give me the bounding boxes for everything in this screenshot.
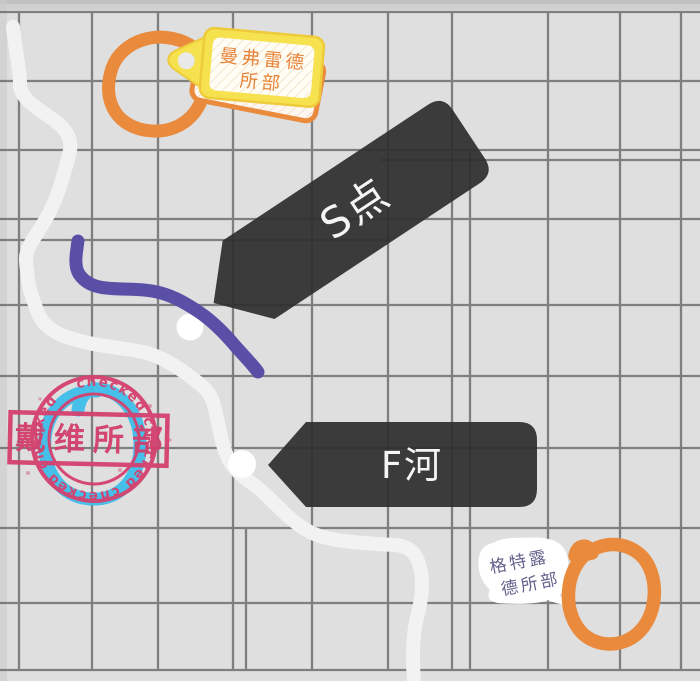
speech-bubble-gertrude: 格特露 德所部: [477, 535, 570, 609]
hand-drawn-map: checked checked checked checked 戴维所部 S点 …: [0, 0, 700, 681]
river-f-label: F河: [381, 444, 443, 487]
map-canvas: checked checked checked checked 戴维所部 S点 …: [0, 0, 700, 681]
stamp-name-text: 戴维所部: [15, 420, 172, 460]
banner-river-f: F河: [268, 422, 537, 507]
tag-label-line2: 所部: [239, 71, 285, 96]
waypoint-dot-2: [228, 450, 256, 478]
